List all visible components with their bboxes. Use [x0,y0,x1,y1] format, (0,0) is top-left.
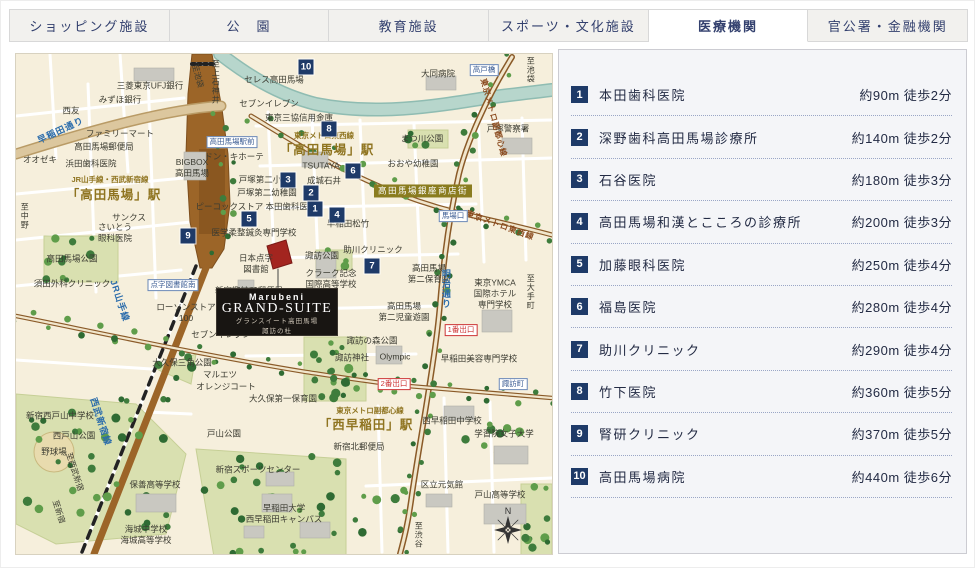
map-label: 高田馬場公園 [46,253,97,264]
facility-number-badge: 2 [571,129,588,146]
tab-label: 教育施設 [379,16,439,35]
map-marker-5: 5 [242,212,257,227]
category-tab-5[interactable]: 官公署・金融機関 [808,9,968,42]
map-marker-10: 10 [299,60,314,75]
facility-distance: 約290m 徒歩4分 [852,340,952,359]
map-label: まつ川公園 [401,133,444,144]
map-marker-4: 4 [330,208,345,223]
property-sub-name: グランスイート高田馬場 [217,318,337,326]
map-label: 諏訪の森公園 [346,335,397,346]
tab-label: 公 園 [227,16,272,35]
map-label: 西友 [62,105,79,116]
facility-row: 10 高田馬場病院 約440m 徒歩6分 [571,456,952,498]
facility-row: 1 本田歯科医院 約90m 徒歩2分 [571,74,952,116]
facility-name: 石谷医院 [599,170,657,189]
facility-number-badge: 10 [571,468,588,485]
category-tab-1[interactable]: 公 園 [170,9,330,42]
map-marker-6: 6 [346,164,361,179]
map-label: TSUTAYA [302,160,339,171]
map-label: Olympic [380,351,411,362]
facility-row: 9 腎研クリニック 約370m 徒歩5分 [571,413,952,455]
map-label: ファミリーマート [86,128,154,139]
map-label: 明治通り [439,269,451,309]
map-label: 新宿西戸山中学校 [26,410,94,421]
map-label: 医学柔整鍼灸専門学校 [211,227,296,238]
map-label: 大久保三角公園 [152,357,212,368]
tab-label: 官公署・金融機関 [828,16,948,35]
map-label: 浜田歯科医院 [65,158,116,169]
map-label: クラーク記念国際高等学校 [305,268,356,290]
facility-number-badge: 8 [571,383,588,400]
facility-row: 7 助川クリニック 約290m 徒歩4分 [571,328,952,370]
map-marker-3: 3 [281,173,296,188]
facility-name: 深野歯科高田馬場診療所 [599,128,759,147]
map-label: 西早稲田中学校 [422,415,482,426]
map-label: 助川クリニック [343,244,403,255]
facility-row: 8 竹下医院 約360m 徒歩5分 [571,371,952,413]
compass-north-label: N [505,506,512,516]
map-label: 大同病院 [421,68,455,79]
map-label: 保善高等学校 [129,479,180,490]
facility-distance: 約180m 徒歩3分 [852,170,952,189]
map-label: BIGBOX高田馬場 [175,157,209,179]
map-label: 戸塚第二小 [239,174,282,185]
map-label: 高田馬場郵便局 [74,141,134,152]
facility-number-badge: 1 [571,86,588,103]
facility-name: 助川クリニック [599,340,701,359]
facility-distance: 約250m 徒歩4分 [852,255,952,274]
facility-number-badge: 5 [571,256,588,273]
facility-number-badge: 7 [571,341,588,358]
facility-name: 竹下医院 [599,382,657,401]
map-label: 海城中学校海城高等学校 [120,524,171,546]
tab-label: 医療機関 [698,16,758,35]
map-marker-7: 7 [365,259,380,274]
map-label: セレス高田馬場 [244,74,304,85]
map-label: 東京YMCA国際ホテル専門学校 [474,277,517,310]
map-label: 新宿北郵便局 [333,441,384,452]
map-label: 西戸山公園 [53,430,96,441]
facility-distance: 約200m 徒歩3分 [852,212,952,231]
category-tab-3[interactable]: スポーツ・文化施設 [489,9,649,42]
map-label: 点字図書館南 [148,279,199,291]
map-label: 諏訪町 [499,378,528,390]
tab-label: ショッピング施設 [29,16,149,35]
map-label: おおや幼稚園 [387,158,438,169]
facility-name: 高田馬場和漢とこころの診療所 [599,212,802,231]
map-label: 至池袋 [525,57,535,84]
map-label: 馬場口 [439,210,468,222]
map-label: 東京メトロ副都心線 [336,406,404,416]
map-label: みずほ銀行 [99,94,142,105]
facility-name: 腎研クリニック [599,424,701,443]
category-tab-0[interactable]: ショッピング施設 [9,9,170,42]
category-tab-bar: ショッピング施設 公 園 教育施設 スポーツ・文化施設 医療機関 官公署・金融機… [9,9,968,42]
property-location-box: Marubeni GRAND-SUITE グランスイート高田馬場 諏訪の杜 [217,289,337,335]
map-label: 早稲田大学西早稲田キャンパス [246,503,323,525]
property-sub-name2: 諏訪の杜 [217,328,337,336]
map-label: JR山手線・西武新宿線 [71,175,148,185]
map-label: 「高田馬場」駅 [280,142,375,158]
facility-row: 5 加藤眼科医院 約250m 徒歩4分 [571,244,952,286]
tab-label: スポーツ・文化施設 [501,16,636,35]
facility-number-badge: 9 [571,425,588,442]
facility-name: 加藤眼科医院 [599,255,686,274]
facility-name: 本田歯科医院 [599,85,686,104]
facility-number-badge: 4 [571,213,588,230]
map-label: 至渋谷 [413,522,423,549]
facility-number-badge: 3 [571,171,588,188]
category-tab-2[interactable]: 教育施設 [329,9,489,42]
map-label: 大久保第一保育園 [249,393,317,404]
map-label: 高田馬場銀座商店街 [374,184,472,197]
map-label: さいとう眼科医院 [98,222,132,244]
map-label: 2番出口 [378,378,411,390]
map-label: 「高田馬場」駅 [67,187,162,203]
map-label: セブンイレブン [239,98,299,109]
map-label: 至中野 [19,203,29,230]
facility-row: 4 高田馬場和漢とこころの診療所 約200m 徒歩3分 [571,201,952,243]
category-tab-4[interactable]: 医療機関 [649,9,809,42]
area-map: 三菱東京UFJ銀行みずほ銀行西友ファミリーマートオオゼキ高田馬場郵便局浜田歯科医… [15,53,553,555]
map-label: オレンジコート [196,381,256,392]
facility-distance: 約140m 徒歩2分 [852,128,952,147]
map-label: 三菱東京UFJ銀行 [117,80,184,91]
map-label: 高田馬場第二児童遊園 [378,301,429,323]
facility-row: 2 深野歯科高田馬場診療所 約140m 徒歩2分 [571,116,952,158]
facility-distance: 約90m 徒歩2分 [859,85,952,104]
map-label: 須田外科クリニック [34,278,111,289]
map-label: 早稲田美容専門学校 [441,353,518,364]
map-label: 至上石神井 [210,60,220,105]
map-label: 戸山公園 [207,428,241,439]
map-label: ローソンストア100 [156,302,215,324]
facility-name: 福島医院 [599,297,657,316]
map-label: 区立元気館 [421,479,464,490]
map-label: 諏訪公園 [305,250,339,261]
map-label: 「西早稲田」駅 [319,417,414,433]
map-label: 諏訪神社 [335,352,369,363]
facility-distance: 約440m 徒歩6分 [852,467,952,486]
map-label: 学習院女子大学 [474,428,534,439]
map-marker-8: 8 [322,122,337,137]
map-label: 至大手町 [525,274,535,310]
facility-list-panel: 1 本田歯科医院 約90m 徒歩2分 2 深野歯科高田馬場診療所 約140m 徒… [558,49,967,554]
map-label: オオゼキ [23,154,57,165]
map-label: ドン・キホーテ [204,151,264,162]
map-marker-9: 9 [181,229,196,244]
locality-map-page: ショッピング施設 公 園 教育施設 スポーツ・文化施設 医療機関 官公署・金融機… [0,0,975,568]
map-label: 高田馬場駅前 [207,136,258,148]
facility-distance: 約280m 徒歩4分 [852,297,952,316]
map-label: マルエツ [203,369,237,380]
facility-distance: 約360m 徒歩5分 [852,382,952,401]
map-label: 戸塚第二幼稚園 [237,187,297,198]
facility-number-badge: 6 [571,298,588,315]
map-marker-2: 2 [304,186,319,201]
map-label: 高戸橋 [470,64,499,76]
facility-name: 高田馬場病院 [599,467,686,486]
map-label: 戸山高等学校 [474,489,525,500]
facility-row: 3 石谷医院 約180m 徒歩3分 [571,159,952,201]
map-label: 日本点字図書館 [239,253,273,275]
map-label: 新宿スポーツセンター [216,464,301,475]
property-name: GRAND-SUITE [217,302,337,316]
facility-distance: 約370m 徒歩5分 [852,424,952,443]
facility-row: 6 福島医院 約280m 徒歩4分 [571,286,952,328]
map-marker-1: 1 [308,202,323,217]
map-label: 1番出口 [445,324,478,336]
